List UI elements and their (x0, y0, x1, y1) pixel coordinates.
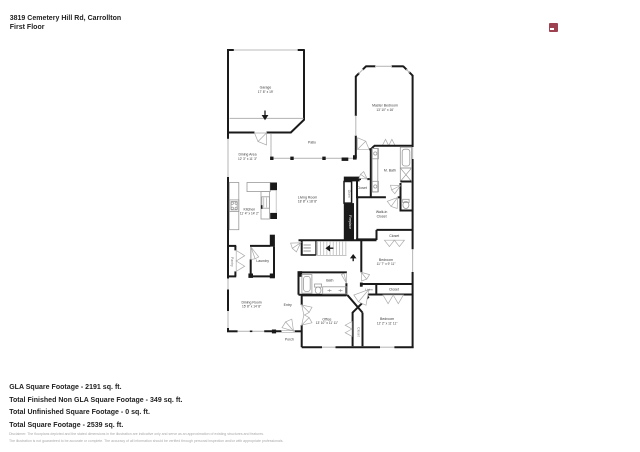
svg-text:12' 3" x 11' 3": 12' 3" x 11' 3" (238, 157, 257, 161)
svg-text:Closet: Closet (357, 186, 367, 190)
svg-text:11' 7" x 9' 11": 11' 7" x 9' 11" (377, 262, 396, 266)
svg-text:Entry: Entry (284, 303, 292, 307)
svg-text:12' 2" x 11' 11": 12' 2" x 11' 11" (377, 321, 398, 325)
svg-text:15' 8" x 14' 8": 15' 8" x 14' 8" (242, 305, 261, 309)
svg-text:13' 10" x 11' 11": 13' 10" x 11' 11" (316, 321, 338, 325)
svg-text:Closet: Closet (389, 287, 399, 291)
svg-text:Oven: Oven (347, 190, 351, 198)
svg-text:Closet: Closet (356, 327, 360, 336)
svg-text:Walk-in: Walk-in (376, 210, 388, 214)
svg-text:Living Room: Living Room (298, 195, 318, 199)
svg-text:17' 8" x 19': 17' 8" x 19' (258, 90, 274, 94)
svg-text:18' 8" x 18' 8": 18' 8" x 18' 8" (298, 200, 317, 204)
svg-text:Porch: Porch (285, 337, 294, 341)
svg-text:Bath: Bath (326, 278, 333, 282)
svg-text:Pantry: Pantry (230, 257, 234, 267)
svg-text:Laundry: Laundry (256, 259, 269, 263)
svg-text:Closet: Closet (377, 215, 387, 219)
svg-text:13' 10" x 16': 13' 10" x 16' (376, 108, 394, 112)
svg-text:Garage: Garage (260, 86, 272, 90)
svg-text:Master Bedroom: Master Bedroom (372, 104, 398, 108)
svg-text:Closet: Closet (389, 234, 399, 238)
svg-text:Fireplace: Fireplace (348, 215, 352, 229)
svg-text:M. Bath: M. Bath (384, 168, 396, 172)
svg-text:11' 4" x 14' 2": 11' 4" x 14' 2" (240, 212, 259, 216)
svg-text:Patio: Patio (308, 140, 316, 144)
